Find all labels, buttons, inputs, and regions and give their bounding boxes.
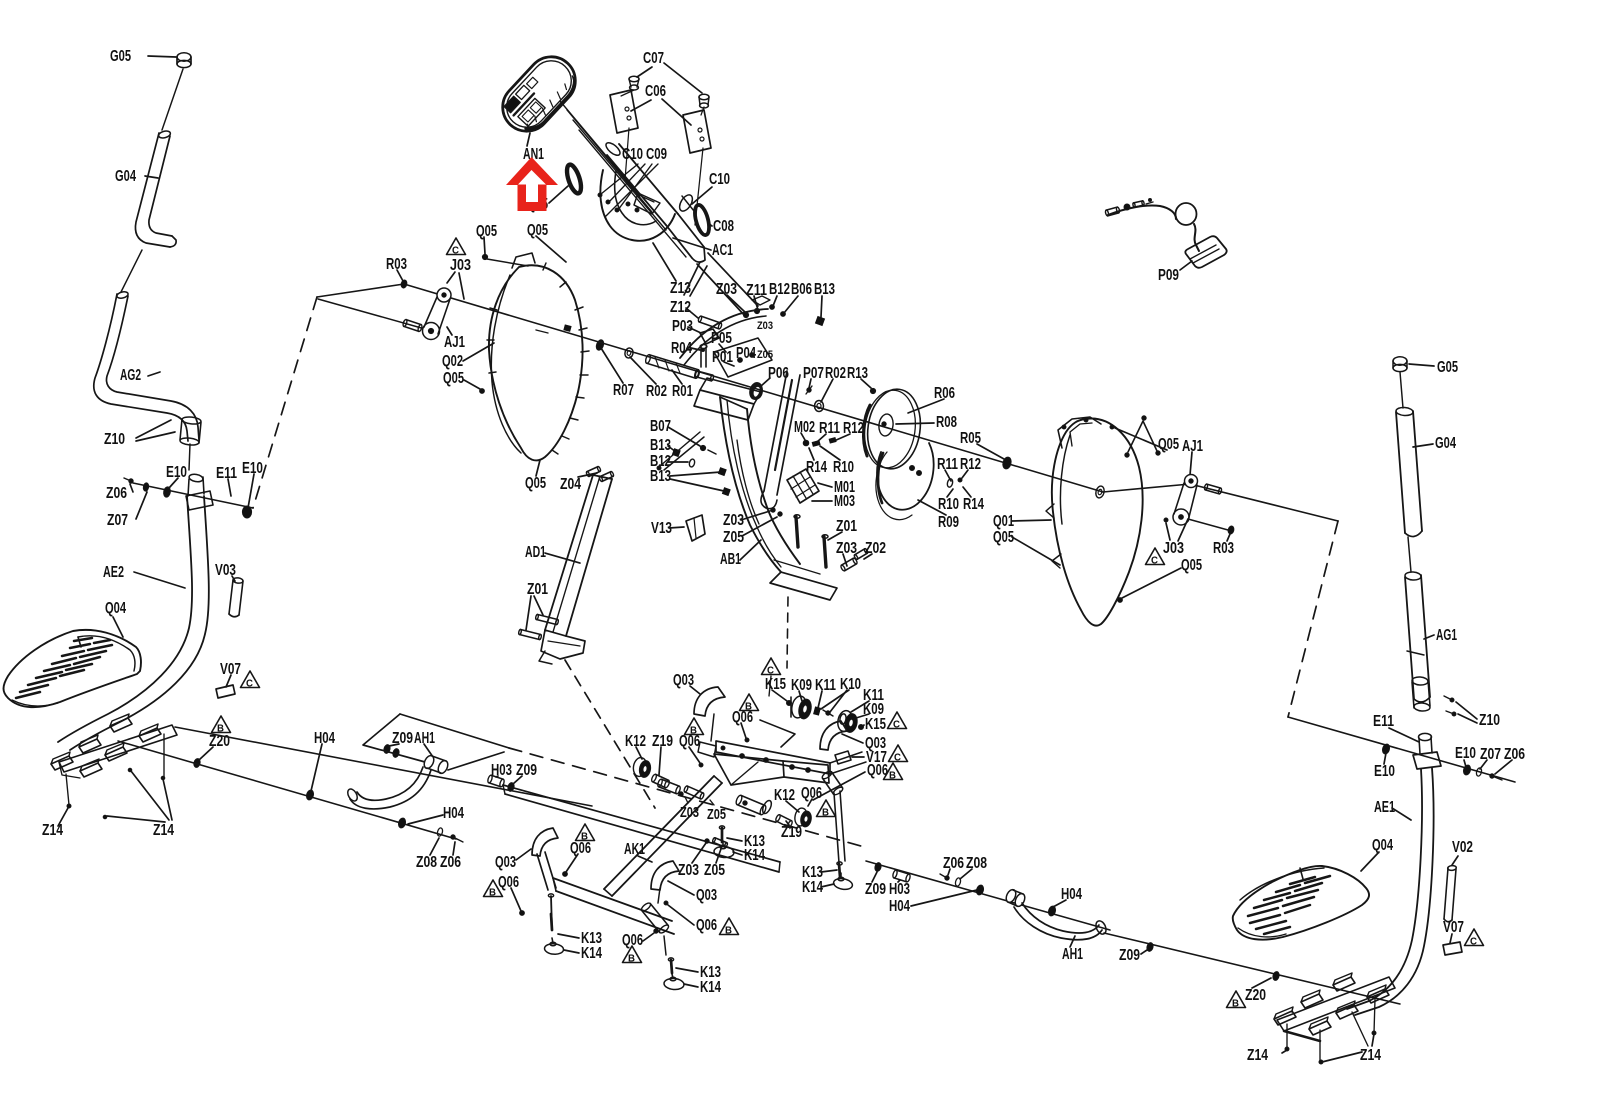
svg-text:K12: K12 — [774, 787, 795, 804]
svg-text:K15: K15 — [765, 676, 786, 693]
svg-text:R13: R13 — [847, 365, 868, 382]
svg-text:P05: P05 — [711, 330, 732, 347]
svg-text:Z14: Z14 — [1360, 1047, 1381, 1064]
svg-text:Q05: Q05 — [993, 529, 1014, 546]
svg-text:P03: P03 — [672, 318, 693, 335]
svg-text:Z10: Z10 — [1479, 712, 1500, 729]
svg-text:Z01: Z01 — [527, 581, 548, 598]
svg-text:C: C — [1151, 555, 1158, 567]
svg-text:AJ1: AJ1 — [444, 334, 465, 351]
svg-text:B13: B13 — [650, 468, 671, 485]
svg-text:C06: C06 — [645, 83, 666, 100]
svg-text:Q04: Q04 — [1372, 837, 1393, 854]
svg-text:K14: K14 — [802, 879, 823, 896]
svg-text:K10: K10 — [840, 676, 861, 693]
svg-text:Q03: Q03 — [696, 887, 717, 904]
svg-text:H04: H04 — [889, 898, 910, 915]
svg-text:K14: K14 — [744, 847, 765, 864]
svg-text:Q04: Q04 — [105, 600, 126, 617]
svg-text:Z09: Z09 — [1119, 947, 1140, 964]
svg-text:B06: B06 — [791, 281, 812, 298]
svg-text:C08: C08 — [713, 218, 734, 235]
svg-text:P09: P09 — [1158, 267, 1179, 284]
svg-text:V07: V07 — [1443, 919, 1464, 936]
svg-text:Z08: Z08 — [416, 854, 437, 871]
svg-text:C10: C10 — [622, 146, 643, 163]
svg-text:B: B — [889, 770, 896, 782]
svg-text:Q01: Q01 — [993, 513, 1014, 530]
svg-text:R14: R14 — [963, 496, 984, 513]
svg-text:M03: M03 — [834, 493, 855, 510]
svg-text:R02: R02 — [646, 383, 667, 400]
svg-text:Z14: Z14 — [42, 822, 63, 839]
svg-text:J03: J03 — [450, 257, 471, 274]
svg-text:Z19: Z19 — [652, 733, 673, 750]
svg-text:R07: R07 — [613, 382, 634, 399]
svg-text:H04: H04 — [443, 805, 464, 822]
svg-text:K11: K11 — [815, 677, 836, 694]
svg-text:Z12: Z12 — [670, 299, 691, 316]
svg-text:K09: K09 — [791, 677, 812, 694]
svg-text:H04: H04 — [314, 730, 335, 747]
svg-text:Z06: Z06 — [106, 485, 127, 502]
svg-text:R10: R10 — [833, 459, 854, 476]
svg-text:Z06: Z06 — [943, 855, 964, 872]
svg-text:C: C — [246, 678, 253, 690]
svg-text:Z08: Z08 — [966, 855, 987, 872]
svg-text:Z14: Z14 — [1247, 1047, 1268, 1064]
svg-text:AB1: AB1 — [720, 551, 741, 568]
svg-text:C09: C09 — [646, 146, 667, 163]
svg-text:H03: H03 — [491, 762, 512, 779]
svg-text:AD1: AD1 — [525, 544, 546, 561]
svg-text:B12: B12 — [769, 281, 790, 298]
svg-text:R10: R10 — [938, 496, 959, 513]
svg-text:B: B — [628, 953, 635, 965]
svg-text:B: B — [690, 725, 697, 737]
svg-text:M02: M02 — [794, 419, 815, 436]
svg-text:G05: G05 — [110, 48, 131, 65]
svg-text:Z01: Z01 — [836, 518, 857, 535]
svg-text:Z06: Z06 — [440, 854, 461, 871]
svg-text:B: B — [725, 925, 732, 937]
svg-text:Z07: Z07 — [107, 512, 128, 529]
svg-text:E11: E11 — [216, 465, 237, 482]
svg-text:C: C — [452, 245, 459, 257]
svg-text:B: B — [745, 701, 752, 713]
svg-text:K14: K14 — [700, 979, 721, 996]
svg-text:E11: E11 — [1373, 713, 1394, 730]
svg-text:Q05: Q05 — [1158, 436, 1179, 453]
svg-text:C: C — [894, 752, 901, 764]
svg-text:C: C — [1470, 936, 1477, 948]
svg-text:Z03: Z03 — [680, 804, 699, 821]
svg-text:J03: J03 — [1163, 540, 1184, 557]
svg-text:Z05: Z05 — [723, 529, 744, 546]
svg-text:C: C — [893, 719, 900, 731]
svg-text:Z20: Z20 — [1245, 987, 1266, 1004]
svg-text:E10: E10 — [1455, 745, 1476, 762]
svg-text:E10: E10 — [242, 460, 263, 477]
svg-text:C: C — [767, 665, 774, 677]
svg-text:Q06: Q06 — [498, 874, 519, 891]
svg-text:B13: B13 — [814, 281, 835, 298]
svg-text:Q06: Q06 — [570, 840, 591, 857]
svg-text:Z04: Z04 — [560, 476, 581, 493]
svg-text:Z03: Z03 — [757, 320, 773, 332]
svg-text:P07: P07 — [803, 365, 824, 382]
svg-text:R12: R12 — [960, 456, 981, 473]
svg-text:B: B — [489, 887, 496, 899]
svg-text:R08: R08 — [936, 414, 957, 431]
svg-text:G04: G04 — [115, 168, 136, 185]
svg-text:B: B — [822, 807, 829, 819]
svg-text:Z03: Z03 — [678, 862, 699, 879]
svg-text:R12: R12 — [843, 420, 864, 437]
svg-text:Q02: Q02 — [442, 353, 463, 370]
svg-text:Q05: Q05 — [525, 475, 546, 492]
svg-text:AE2: AE2 — [103, 564, 124, 581]
svg-text:R01: R01 — [672, 383, 693, 400]
svg-text:Q06: Q06 — [696, 917, 717, 934]
svg-text:AC1: AC1 — [712, 242, 733, 259]
svg-text:Z02: Z02 — [865, 540, 886, 557]
svg-text:Q05: Q05 — [443, 370, 464, 387]
svg-text:R04: R04 — [671, 340, 692, 357]
svg-text:B: B — [581, 831, 588, 843]
svg-text:B: B — [1232, 998, 1239, 1010]
svg-text:R11: R11 — [819, 420, 840, 437]
svg-text:K14: K14 — [581, 945, 602, 962]
svg-text:Z03: Z03 — [836, 540, 857, 557]
svg-text:Q03: Q03 — [495, 854, 516, 871]
svg-text:Q05: Q05 — [1181, 557, 1202, 574]
svg-text:C10: C10 — [709, 171, 730, 188]
svg-text:Z07: Z07 — [1480, 746, 1501, 763]
svg-text:AH1: AH1 — [1062, 946, 1083, 963]
svg-text:Z06: Z06 — [1504, 746, 1525, 763]
svg-text:R09: R09 — [938, 514, 959, 531]
svg-text:G04: G04 — [1435, 435, 1456, 452]
svg-text:AG2: AG2 — [120, 367, 141, 384]
svg-text:AK1: AK1 — [624, 841, 645, 858]
svg-text:Z05: Z05 — [707, 806, 726, 823]
svg-text:K15: K15 — [865, 716, 886, 733]
svg-text:E10: E10 — [1374, 763, 1395, 780]
svg-text:V02: V02 — [1452, 839, 1473, 856]
svg-text:G05: G05 — [1437, 359, 1458, 376]
svg-text:Q05: Q05 — [476, 223, 497, 240]
svg-text:Z09: Z09 — [516, 762, 537, 779]
svg-text:R02: R02 — [825, 365, 846, 382]
svg-text:Z09: Z09 — [865, 881, 886, 898]
svg-text:R03: R03 — [1213, 540, 1234, 557]
svg-text:Z10: Z10 — [104, 431, 125, 448]
svg-text:H03: H03 — [889, 881, 910, 898]
svg-text:Z19: Z19 — [781, 824, 802, 841]
svg-text:Z14: Z14 — [153, 822, 174, 839]
svg-text:Z05: Z05 — [704, 862, 725, 879]
svg-text:AG1: AG1 — [1436, 627, 1457, 644]
svg-text:R11: R11 — [937, 456, 958, 473]
svg-text:C07: C07 — [643, 50, 664, 67]
